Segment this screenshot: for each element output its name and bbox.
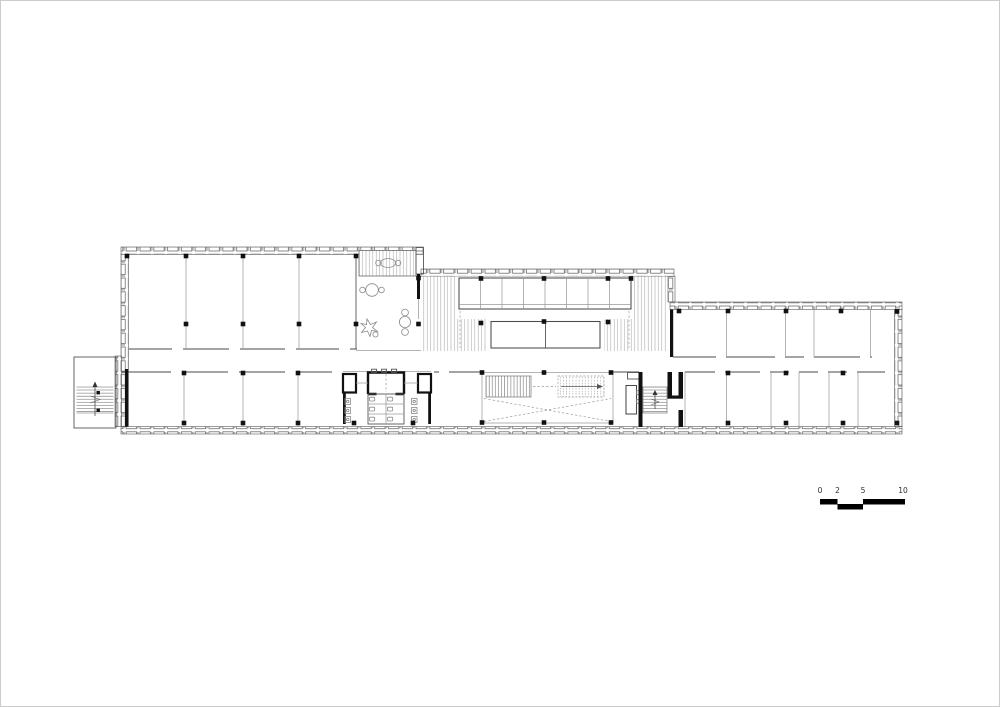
scale-label-2: 2	[835, 486, 840, 495]
stair-wall	[668, 372, 673, 399]
stair-wall	[639, 372, 643, 427]
scale-segment-5-10	[863, 499, 905, 505]
chair-icon	[402, 329, 409, 336]
toilet-icon	[388, 417, 393, 421]
sinks-east	[412, 399, 418, 423]
shaft-west	[343, 374, 356, 393]
platform-lift	[626, 386, 637, 415]
post	[97, 391, 100, 394]
grand-stair-void	[482, 373, 613, 424]
scale-bar: 0 2 5 10	[818, 486, 908, 510]
toilet-icon	[388, 397, 393, 401]
post	[97, 409, 100, 412]
stair-wall	[679, 372, 684, 399]
toilet-icon	[388, 407, 393, 411]
chair-icon	[379, 287, 385, 293]
drawing-sheet: 0 2 5 10	[0, 0, 1000, 707]
chair-icon	[402, 309, 409, 316]
west-exterior-stair	[74, 357, 116, 428]
plant-icon	[361, 319, 378, 337]
plant-pot-icon	[373, 332, 378, 337]
elevator-wc-core	[343, 369, 431, 424]
stair-flight-west	[486, 376, 531, 397]
scale-label-10: 10	[898, 486, 908, 495]
scale-segment-2-5	[838, 504, 864, 510]
floor-plan: 0 2 5 10	[1, 1, 1000, 707]
toilet-icon	[370, 407, 375, 411]
sinks-west	[345, 399, 351, 423]
terrace	[359, 248, 424, 338]
wc-stall-dividers	[368, 394, 404, 424]
facade-bottom	[121, 427, 902, 434]
toilet-icon	[370, 397, 375, 401]
central-hall	[421, 276, 669, 351]
facade-top-right	[670, 302, 902, 309]
core-wall	[428, 393, 431, 425]
void-cross	[484, 399, 611, 422]
wing-west-wall	[670, 310, 673, 358]
stair-arrow-head	[93, 382, 98, 388]
facade-east	[895, 309, 902, 426]
scale-label-0: 0	[818, 486, 823, 495]
canopy-deck	[359, 250, 416, 276]
round-table-icon	[399, 316, 410, 327]
stair-wall	[668, 396, 684, 399]
scale-segment-0-2	[820, 499, 838, 505]
facade-middle-step	[668, 276, 675, 302]
facade-top-middle	[421, 269, 674, 276]
right-wing-upper	[670, 309, 872, 357]
shaft-east	[418, 374, 431, 393]
west-end-wall	[125, 369, 128, 427]
chair-icon	[360, 287, 366, 293]
scale-label-5: 5	[861, 486, 866, 495]
stair-wall	[679, 410, 684, 427]
toilet-icon	[370, 417, 375, 421]
duct	[628, 373, 640, 380]
round-table-icon	[366, 284, 379, 297]
east-stair-core	[626, 372, 683, 427]
